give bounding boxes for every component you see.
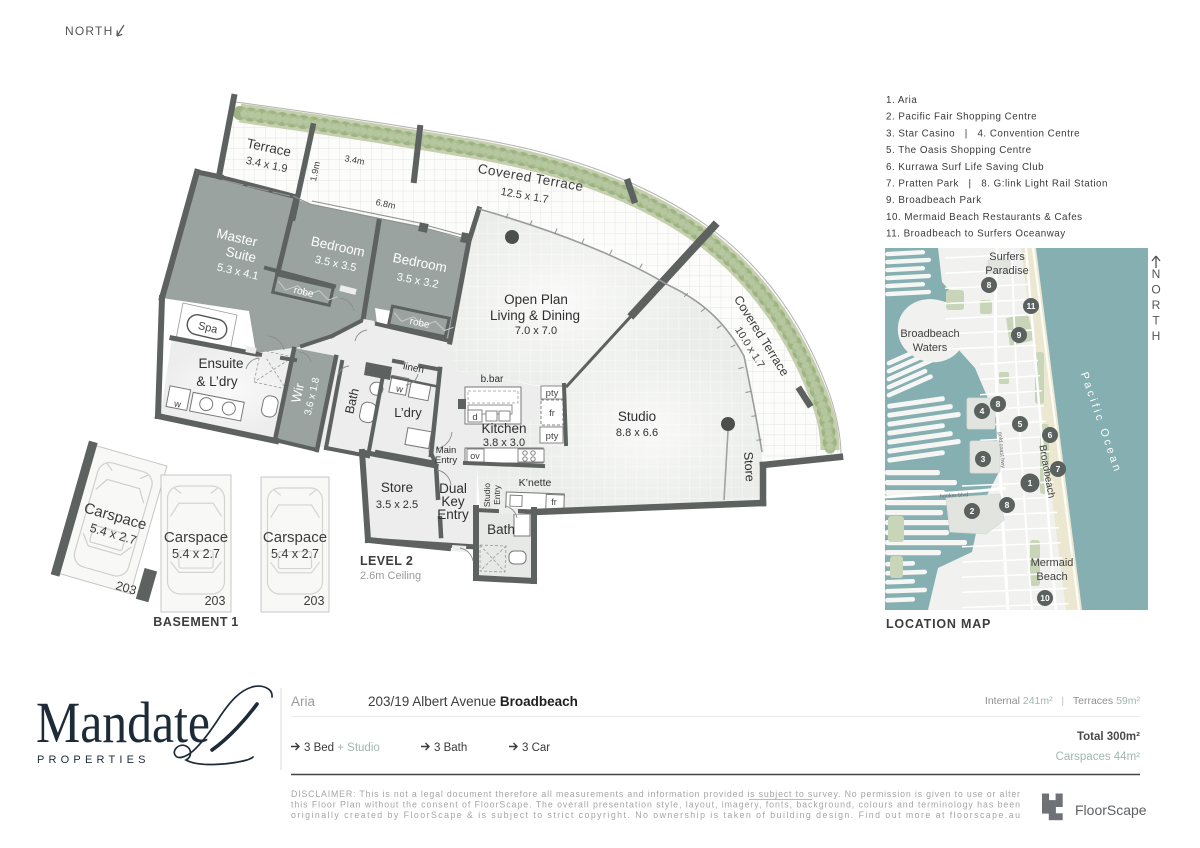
svg-text:T: T [1152, 314, 1160, 328]
svg-text:Bath: Bath [487, 522, 515, 537]
svg-text:Kitchen: Kitchen [481, 421, 526, 436]
svg-text:2.6m Ceiling: 2.6m Ceiling [360, 570, 421, 582]
svg-text:Total 300m²: Total 300m² [1077, 731, 1140, 743]
svg-text:DISCLAIMER: This is not a lega: DISCLAIMER: This is not a legal document… [291, 789, 1020, 799]
svg-text:K’nette: K’nette [519, 477, 552, 489]
svg-text:Carspace: Carspace [263, 529, 327, 546]
svg-text:H: H [1152, 329, 1161, 343]
svg-text:3: 3 [981, 454, 986, 464]
svg-text:7: 7 [1056, 464, 1061, 474]
svg-text:5.4 x 2.7: 5.4 x 2.7 [271, 547, 319, 561]
svg-text:1: 1 [1028, 478, 1033, 488]
svg-text:R: R [1152, 298, 1161, 312]
svg-text:2. Pacific Fair Shopping Centr: 2. Pacific Fair Shopping Centre [886, 112, 1037, 123]
svg-text:Entry: Entry [435, 455, 457, 466]
svg-text:ov: ov [470, 451, 480, 461]
svg-text:3 Bed + Studio: 3 Bed + Studio [304, 742, 380, 754]
svg-text:6. Kurrawa Surf Life Saving Cl: 6. Kurrawa Surf Life Saving Club [886, 162, 1044, 173]
svg-text:Entry: Entry [492, 484, 502, 505]
svg-text:5: 5 [1018, 419, 1023, 429]
svg-text:O: O [1151, 283, 1160, 297]
svg-text:Living & Dining: Living & Dining [490, 308, 580, 323]
svg-text:8: 8 [987, 280, 992, 290]
svg-text:203: 203 [205, 594, 226, 608]
svg-text:5. The Oasis Shopping Centre: 5. The Oasis Shopping Centre [886, 145, 1032, 156]
svg-text:8: 8 [996, 399, 1001, 409]
svg-text:8.8 x 6.6: 8.8 x 6.6 [616, 427, 658, 439]
svg-text:Broadbeach: Broadbeach [900, 328, 959, 340]
svg-text:pty: pty [546, 431, 559, 442]
svg-text:2: 2 [970, 506, 975, 516]
svg-text:Beach: Beach [1036, 571, 1067, 583]
svg-text:Surfers: Surfers [989, 251, 1025, 263]
svg-text:9. Broadbeach Park: 9. Broadbeach Park [886, 195, 982, 206]
svg-text:b.bar: b.bar [481, 374, 504, 385]
svg-text:Store: Store [741, 451, 757, 482]
svg-text:FloorScape: FloorScape [1075, 802, 1147, 818]
svg-text:3 Bath: 3 Bath [434, 742, 467, 754]
svg-text:7. Pratten Park | 8. G:lin: 7. Pratten Park | 8. G:link Light Rail S… [886, 179, 1108, 190]
svg-text:10: 10 [1040, 593, 1050, 603]
svg-text:6: 6 [1048, 430, 1053, 440]
svg-text:LOCATION MAP: LOCATION MAP [886, 617, 991, 631]
svg-text:Carspace: Carspace [164, 529, 228, 546]
svg-text:Entry: Entry [437, 507, 469, 522]
svg-text:PROPERTIES: PROPERTIES [37, 754, 150, 766]
svg-text:3.5 x 2.5: 3.5 x 2.5 [376, 499, 418, 511]
svg-text:3.8 x 3.0: 3.8 x 3.0 [483, 437, 525, 449]
svg-text:& L’dry: & L’dry [196, 374, 238, 389]
svg-text:Open Plan: Open Plan [504, 292, 568, 307]
svg-text:N: N [1152, 267, 1161, 281]
svg-text:1. Aria: 1. Aria [886, 95, 917, 106]
svg-text:L’dry: L’dry [394, 405, 422, 420]
svg-text:203/19 Albert Avenue Broadbeac: 203/19 Albert Avenue Broadbeach [368, 694, 578, 709]
svg-text:11: 11 [1027, 301, 1036, 311]
svg-text:Internal 241m² | Terraces: Internal 241m² | Terraces 59m² [985, 695, 1141, 707]
svg-text:Store: Store [381, 480, 413, 495]
svg-text:Paradise: Paradise [985, 265, 1028, 277]
svg-text:BASEMENT 1: BASEMENT 1 [153, 615, 239, 629]
svg-text:7.0 x 7.0: 7.0 x 7.0 [515, 325, 557, 337]
svg-text:Carspaces 44m²: Carspaces 44m² [1056, 751, 1141, 763]
svg-text:10. Mermaid Beach Restaurants: 10. Mermaid Beach Restaurants & Cafes [886, 212, 1083, 223]
svg-text:LEVEL 2: LEVEL 2 [360, 554, 413, 568]
svg-text:Ensuite: Ensuite [198, 356, 243, 371]
svg-text:d: d [472, 412, 477, 423]
svg-text:originally created by FloorSca: originally created by FloorScape & is su… [291, 810, 1020, 820]
svg-text:Studio: Studio [618, 409, 656, 424]
svg-text:fr: fr [551, 497, 557, 507]
svg-text:Mermaid: Mermaid [1031, 557, 1074, 569]
svg-text:NORTH: NORTH [65, 24, 113, 38]
svg-text:Studio: Studio [482, 483, 492, 507]
svg-text:9: 9 [1017, 330, 1022, 340]
svg-text:203: 203 [304, 594, 325, 608]
svg-text:5.4 x 2.7: 5.4 x 2.7 [172, 547, 220, 561]
svg-text:8: 8 [1005, 500, 1010, 510]
svg-text:pty: pty [546, 388, 559, 399]
svg-text:3 Car: 3 Car [522, 742, 550, 754]
svg-text:this Floor Plan without the co: this Floor Plan without the consent of F… [291, 800, 1020, 810]
svg-text:Waters: Waters [913, 342, 948, 354]
svg-text:3. Star Casino | 4. Conven: 3. Star Casino | 4. Convention Centre [886, 128, 1080, 139]
svg-text:4: 4 [980, 406, 985, 416]
svg-text:fr: fr [549, 408, 555, 419]
svg-text:11. Broadbeach to Surfers Ocea: 11. Broadbeach to Surfers Oceanway [886, 229, 1066, 240]
svg-text:Aria: Aria [291, 694, 315, 709]
